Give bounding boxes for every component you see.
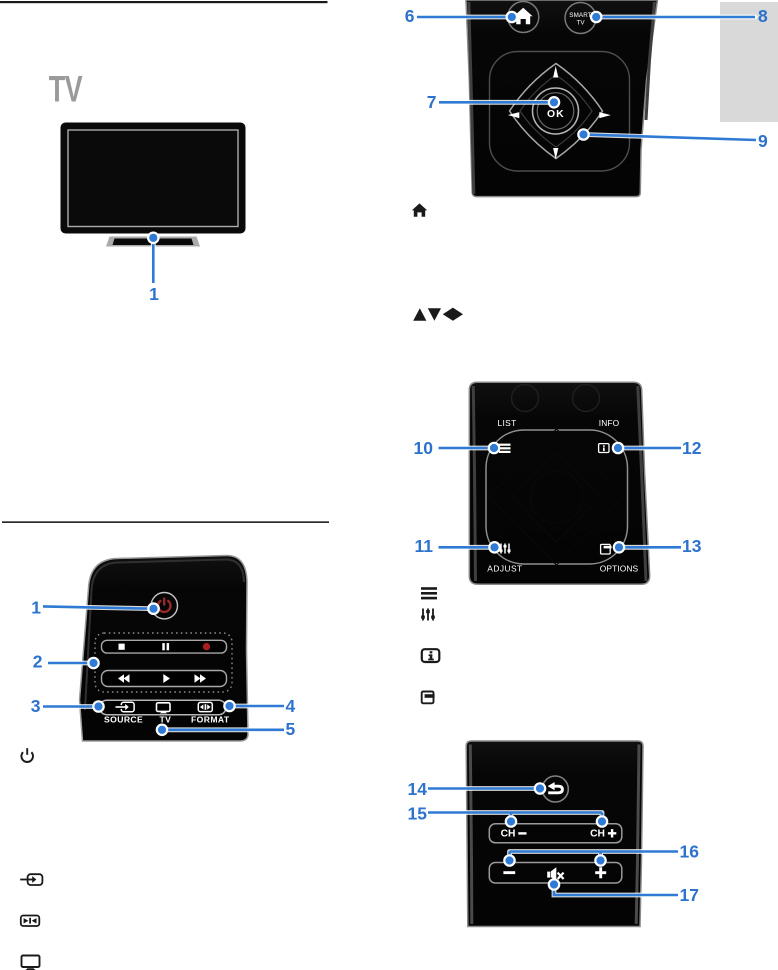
svg-text:2: 2: [33, 652, 43, 672]
svg-text:15: 15: [408, 804, 428, 824]
svg-text:CH: CH: [501, 829, 516, 840]
svg-text:CH: CH: [590, 829, 605, 840]
svg-text:9: 9: [758, 131, 768, 151]
svg-text:6: 6: [405, 6, 415, 26]
svg-text:13: 13: [682, 536, 702, 556]
svg-text:INFO: INFO: [599, 418, 620, 428]
svg-text:16: 16: [680, 842, 700, 862]
svg-text:1: 1: [149, 284, 159, 304]
svg-text:LIST: LIST: [498, 418, 517, 428]
svg-text:TV: TV: [49, 67, 83, 109]
svg-text:OPTIONS: OPTIONS: [600, 564, 639, 574]
svg-text:OK: OK: [547, 109, 565, 120]
svg-text:17: 17: [680, 885, 699, 905]
svg-text:4: 4: [286, 696, 296, 716]
svg-text:7: 7: [427, 92, 437, 112]
svg-text:FORMAT: FORMAT: [191, 714, 230, 724]
svg-text:12: 12: [682, 438, 702, 458]
svg-text:TV: TV: [160, 714, 172, 724]
svg-text:SMART: SMART: [569, 12, 591, 19]
svg-text:SOURCE: SOURCE: [104, 714, 143, 724]
svg-text:TV: TV: [576, 20, 585, 27]
svg-text:5: 5: [286, 719, 296, 739]
svg-text:ADJUST: ADJUST: [487, 564, 522, 574]
svg-text:11: 11: [415, 536, 434, 556]
svg-text:1: 1: [31, 597, 41, 617]
svg-text:10: 10: [414, 438, 434, 458]
svg-text:8: 8: [758, 6, 768, 26]
svg-text:3: 3: [31, 696, 41, 716]
svg-text:14: 14: [408, 779, 428, 799]
